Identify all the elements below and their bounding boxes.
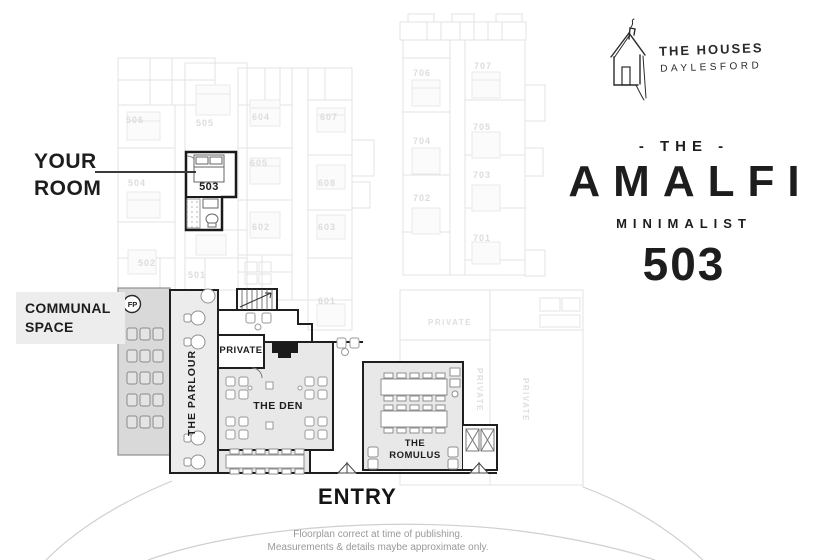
room-number-704: 704 — [413, 136, 431, 146]
room-number-502: 502 — [138, 258, 156, 268]
room-number-501: 501 — [188, 270, 206, 280]
entry-label: ENTRY — [318, 484, 397, 510]
communal-space-callout: COMMUNAL SPACE — [16, 292, 125, 344]
parlour-label: THE PARLOUR — [186, 350, 198, 436]
brand-name: AMALFI — [556, 157, 820, 207]
brand-logo: THE HOUSES DAYLESFORD — [556, 18, 812, 114]
room-number-707: 707 — [474, 61, 492, 71]
brand-block: THE HOUSES DAYLESFORD - THE - AMALFI MIN… — [556, 18, 812, 291]
shower-icon — [187, 199, 200, 228]
bed-icon — [194, 155, 224, 182]
entry-vestibule — [463, 425, 497, 470]
romulus-label: THE ROMULUS — [383, 438, 447, 462]
stairs-icon — [237, 289, 277, 310]
floorplan-page: { "brand": { "logo_line1": "THE HOUSES",… — [0, 0, 820, 560]
room-number-706: 706 — [413, 68, 431, 78]
room-503-label: 503 — [192, 181, 226, 193]
brand-room-number: 503 — [556, 237, 812, 291]
faded-private-label: PRIVATE — [428, 318, 472, 327]
footer-line2: Measurements & details maybe approximate… — [198, 541, 558, 554]
room-number-703: 703 — [473, 170, 491, 180]
room-number-506: 506 — [126, 115, 144, 125]
room-number-604: 604 — [252, 112, 270, 122]
faded-private-label-vertical: PRIVATE — [475, 368, 484, 412]
room-number-601: 601 — [318, 296, 336, 306]
room-number-702: 702 — [413, 193, 431, 203]
your-room-line2: ROOM — [34, 175, 101, 202]
den-label: THE DEN — [247, 400, 309, 412]
brand-logo-text: THE HOUSES DAYLESFORD — [659, 18, 764, 73]
room-number-605: 605 — [250, 158, 268, 168]
brand-style: MINIMALIST — [556, 216, 812, 231]
room-number-705: 705 — [473, 122, 491, 132]
faded-bed-icons — [127, 72, 500, 326]
brand-prefix: - THE - — [556, 138, 812, 155]
sink-icon — [203, 199, 218, 208]
room-number-608: 608 — [318, 178, 336, 188]
communal-lounge-room — [118, 288, 170, 455]
your-room-callout: YOUR ROOM — [34, 148, 101, 202]
room-number-607: 607 — [320, 112, 338, 122]
footer-disclaimer: Floorplan correct at time of publishing.… — [198, 528, 558, 554]
brand-logo-line2: DAYLESFORD — [659, 60, 764, 75]
room-number-505: 505 — [196, 118, 214, 128]
your-room-line1: YOUR — [34, 148, 101, 175]
faded-private-label-vertical: PRIVATE — [521, 378, 530, 422]
room-number-603: 603 — [318, 222, 336, 232]
room-number-504: 504 — [128, 178, 146, 188]
room-number-602: 602 — [252, 222, 270, 232]
footer-line1: Floorplan correct at time of publishing. — [198, 528, 558, 541]
house-sketch-logo — [605, 18, 651, 108]
fireplace-label: FP — [125, 300, 140, 309]
room-number-701: 701 — [473, 233, 491, 243]
brand-logo-line1: THE HOUSES — [659, 40, 764, 59]
private-room-label: PRIVATE — [219, 345, 263, 356]
